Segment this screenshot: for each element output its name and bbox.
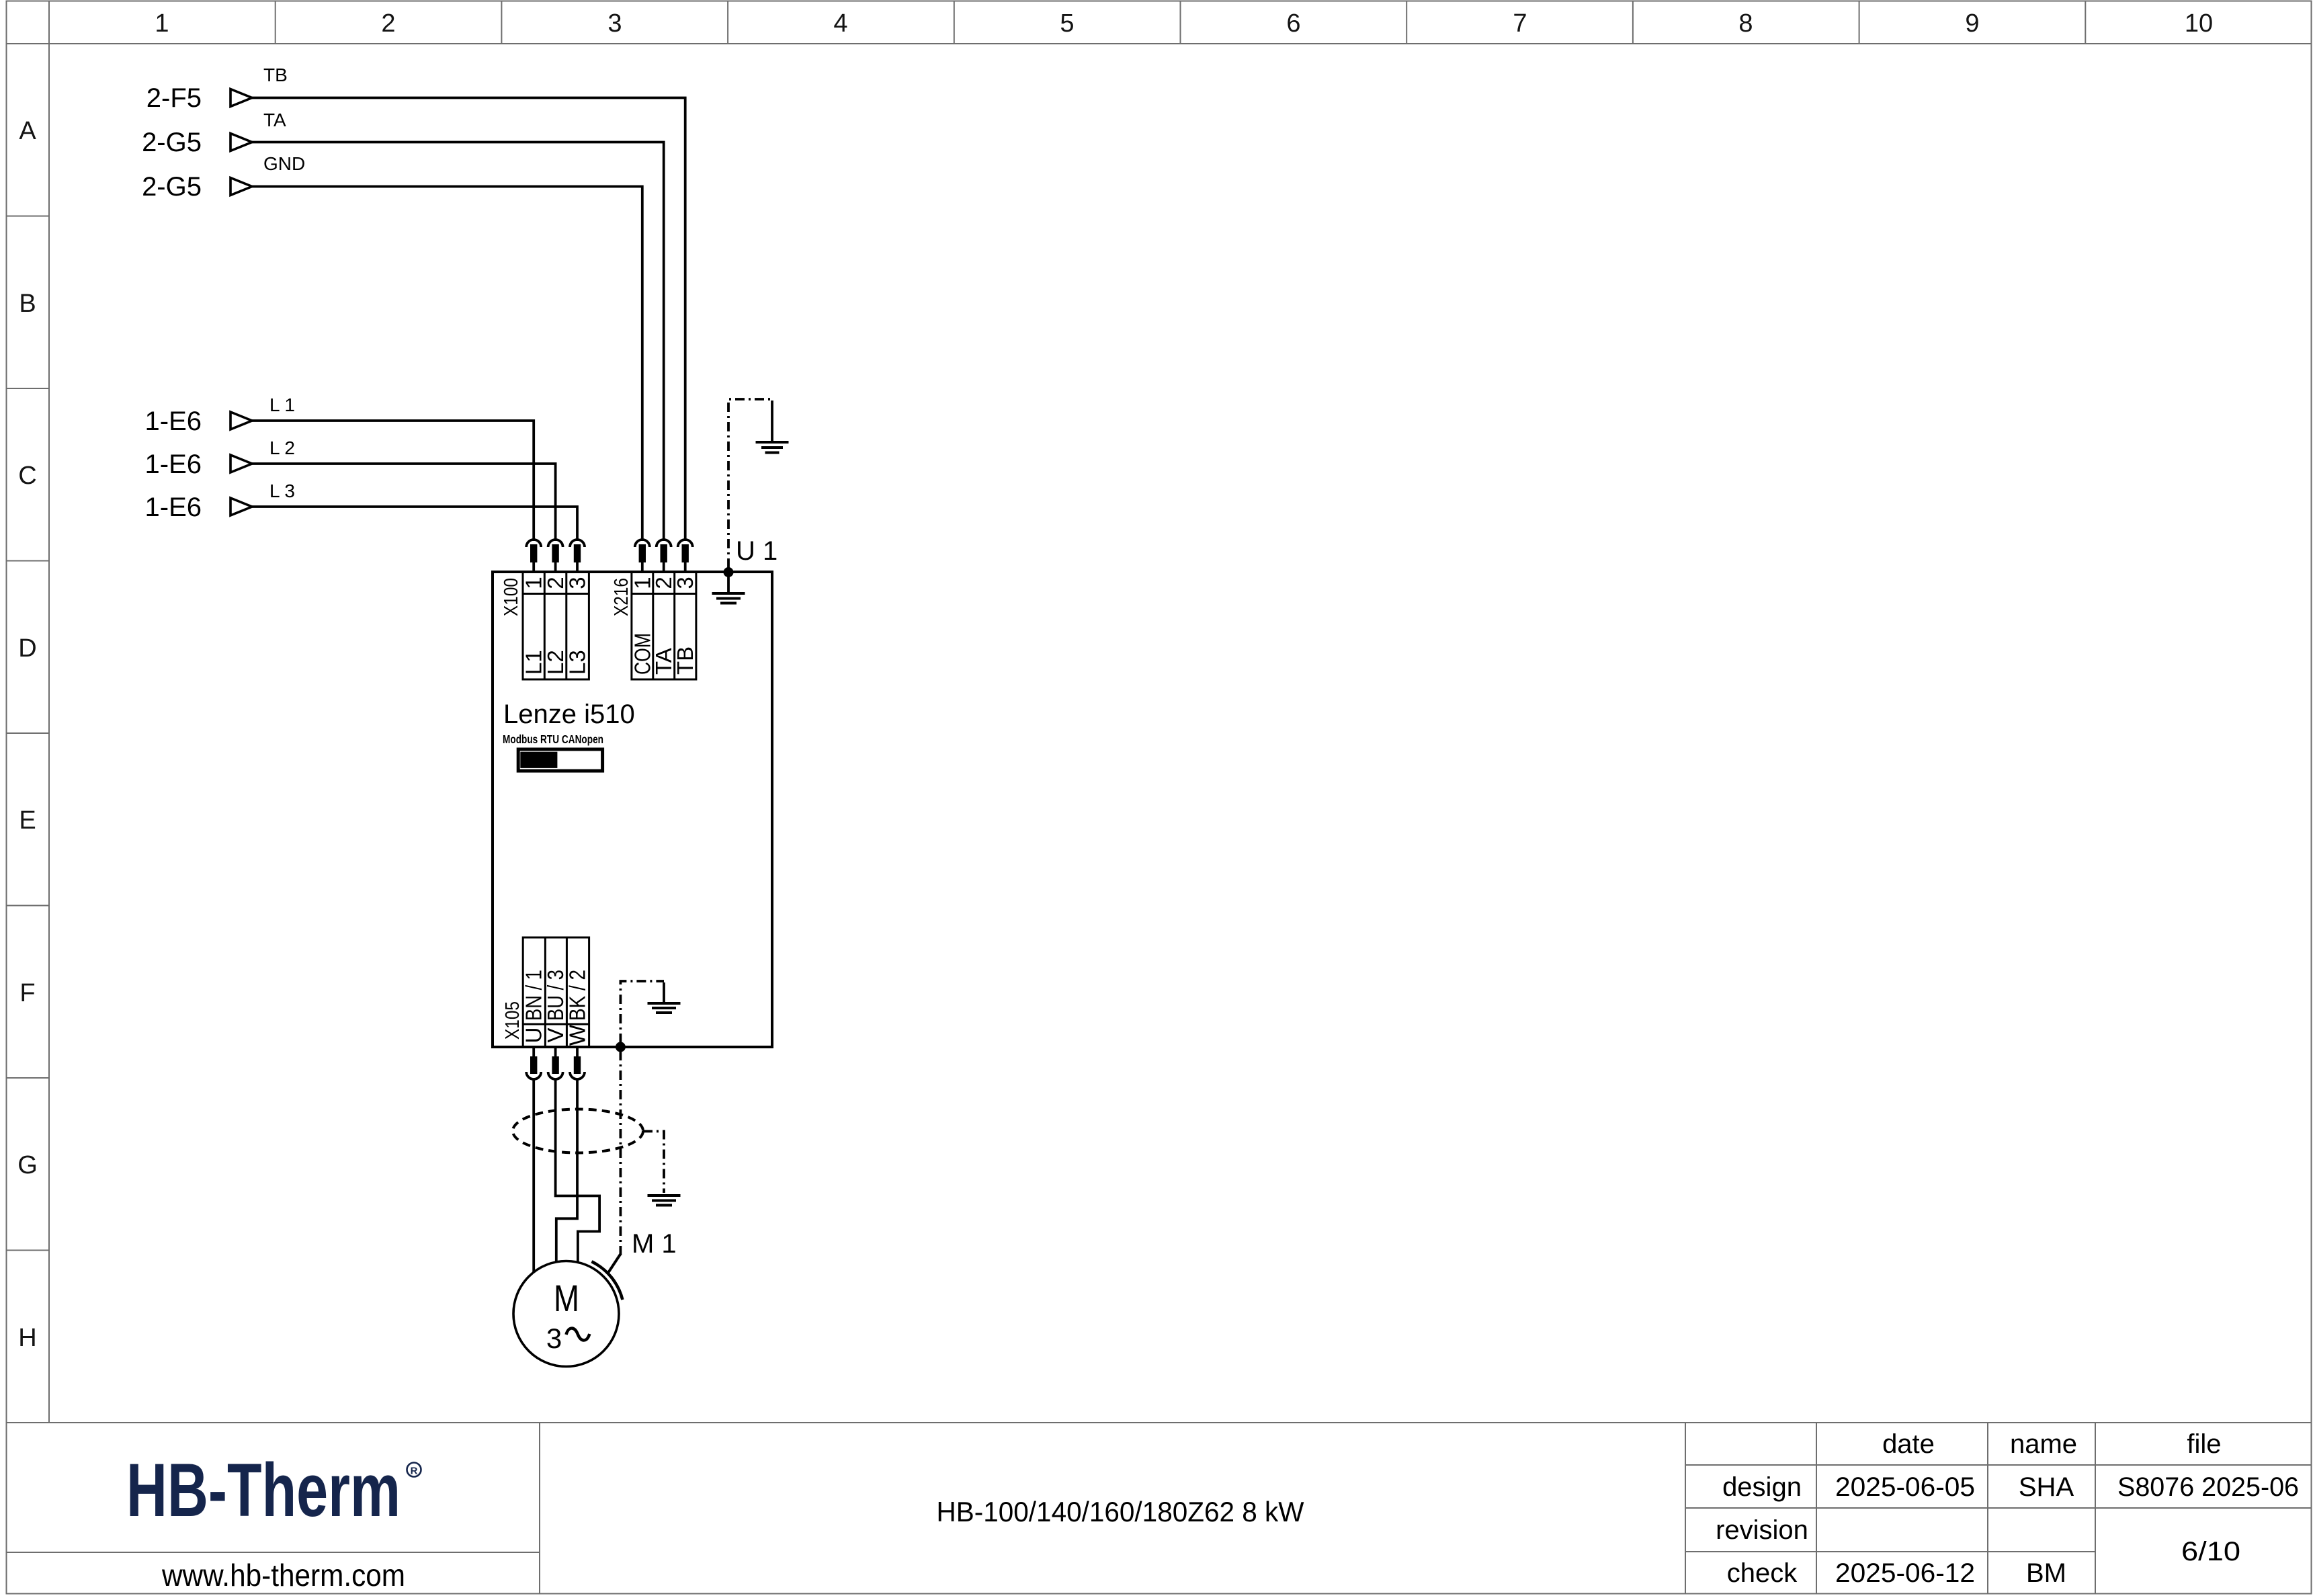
- svg-text:9: 9: [1965, 9, 1979, 38]
- svg-text:2025-06-12: 2025-06-12: [1835, 1558, 1975, 1588]
- svg-text:HB-Therm: HB-Therm: [126, 1448, 401, 1532]
- svg-text:TB: TB: [673, 646, 698, 675]
- svg-text:Lenze i510: Lenze i510: [503, 700, 635, 729]
- svg-text:U 1: U 1: [736, 536, 777, 566]
- svg-text:L 2: L 2: [269, 437, 295, 458]
- svg-text:3: 3: [565, 577, 590, 589]
- svg-text:6: 6: [1286, 9, 1300, 38]
- svg-text:3: 3: [546, 1322, 562, 1354]
- svg-text:10: 10: [2185, 9, 2213, 38]
- svg-text:1-E6: 1-E6: [145, 450, 202, 479]
- svg-text:B: B: [19, 290, 36, 318]
- svg-text:1: 1: [155, 9, 169, 38]
- svg-text:name: name: [2010, 1429, 2077, 1459]
- svg-text:8: 8: [1738, 9, 1753, 38]
- svg-text:2: 2: [381, 9, 395, 38]
- svg-text:2025-06-05: 2025-06-05: [1835, 1472, 1975, 1502]
- svg-text:7: 7: [1513, 9, 1527, 38]
- svg-text:HB-100/140/160/180Z62 8 kW: HB-100/140/160/180Z62 8 kW: [937, 1496, 1304, 1527]
- svg-text:F: F: [19, 979, 35, 1007]
- svg-text:SHA: SHA: [2019, 1472, 2074, 1502]
- svg-text:1-E6: 1-E6: [145, 493, 202, 522]
- svg-text:C: C: [18, 462, 36, 490]
- svg-text:4: 4: [833, 9, 847, 38]
- svg-text:M 1: M 1: [632, 1229, 677, 1259]
- svg-text:X100: X100: [501, 578, 522, 616]
- svg-text:BK / 2: BK / 2: [565, 970, 590, 1021]
- svg-text:L 1: L 1: [269, 394, 295, 415]
- svg-text:2-F5: 2-F5: [146, 83, 202, 113]
- svg-text:design: design: [1722, 1472, 1802, 1502]
- svg-text:X105: X105: [502, 1001, 523, 1040]
- svg-text:1-E6: 1-E6: [145, 407, 202, 436]
- svg-text:check: check: [1727, 1558, 1798, 1588]
- svg-text:TA: TA: [263, 110, 286, 130]
- svg-text:3: 3: [673, 577, 698, 589]
- svg-text:X216: X216: [611, 578, 632, 616]
- svg-text:A: A: [19, 117, 36, 145]
- svg-text:E: E: [19, 806, 36, 835]
- svg-text:BM: BM: [2026, 1558, 2066, 1588]
- svg-text:file: file: [2187, 1429, 2221, 1459]
- svg-text:L 3: L 3: [269, 480, 295, 501]
- svg-text:H: H: [18, 1324, 36, 1352]
- svg-text:W: W: [565, 1024, 590, 1046]
- svg-text:2-G5: 2-G5: [142, 128, 202, 157]
- svg-text:GND: GND: [263, 153, 305, 174]
- svg-text:3: 3: [607, 9, 622, 38]
- svg-text:6/10: 6/10: [2181, 1537, 2240, 1566]
- svg-text:D: D: [18, 634, 36, 663]
- svg-text:5: 5: [1060, 9, 1074, 38]
- svg-text:TB: TB: [263, 65, 288, 85]
- svg-text:www.hb-therm.com: www.hb-therm.com: [161, 1558, 405, 1593]
- svg-text:S8076 2025-06: S8076 2025-06: [2117, 1472, 2299, 1502]
- svg-text:R: R: [411, 1466, 418, 1477]
- svg-text:Modbus RTU CANopen: Modbus RTU CANopen: [503, 732, 603, 746]
- svg-text:revision: revision: [1716, 1515, 1808, 1545]
- svg-text:M: M: [554, 1277, 579, 1319]
- svg-text:2-G5: 2-G5: [142, 172, 202, 202]
- svg-text:date: date: [1882, 1429, 1935, 1459]
- svg-text:L3: L3: [565, 650, 590, 675]
- svg-text:G: G: [17, 1151, 38, 1179]
